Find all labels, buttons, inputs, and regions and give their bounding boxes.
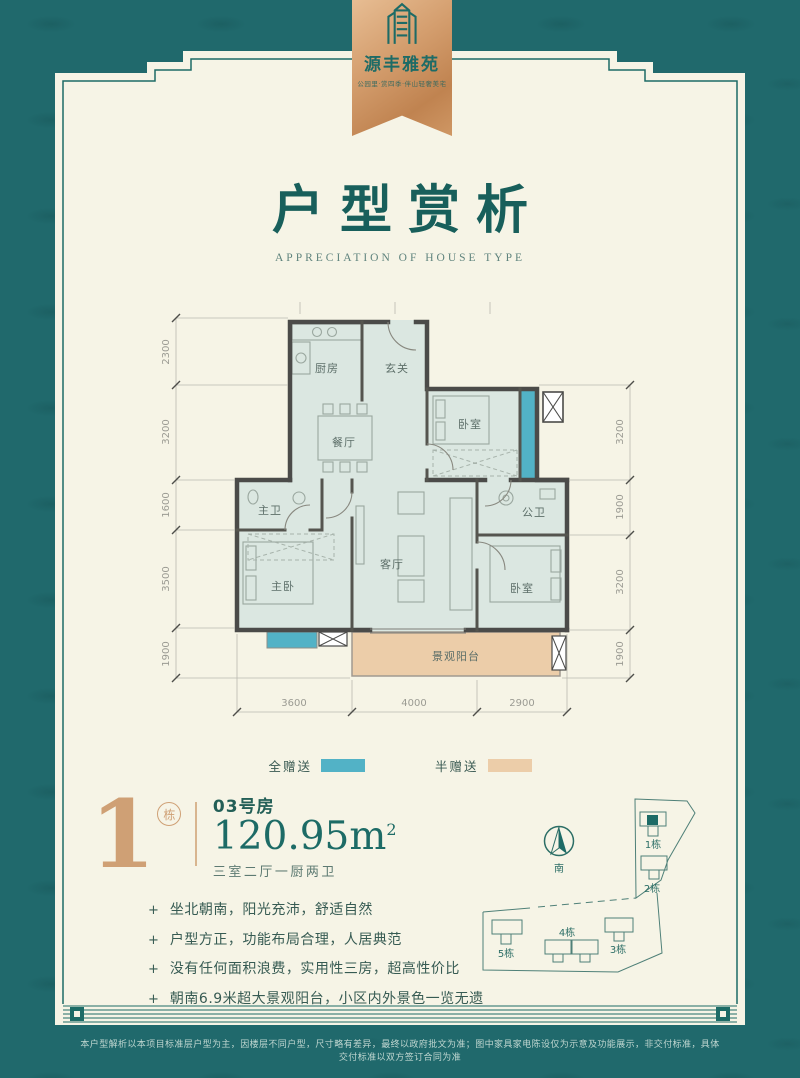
- plus-marker: +: [148, 933, 159, 948]
- plus-marker: +: [148, 992, 159, 1007]
- svg-text:3600: 3600: [281, 698, 306, 709]
- unit-info: 1 栋 03号房 120.95m2 三室二厅一厨两卫: [90, 792, 397, 880]
- poster: 源丰雅苑 公园里·赏四季·伴山轻奢美宅 户型赏析 APPRECIATION OF…: [0, 0, 800, 1078]
- brand-name: 源丰雅苑: [364, 50, 440, 75]
- building-1-marker: [647, 815, 658, 825]
- feature-item: +坐北朝南，阳光充沛，舒适自然: [148, 899, 484, 919]
- building-number: 1: [90, 792, 155, 878]
- room-label-living: 客厅: [380, 557, 404, 571]
- room-label-public-bath: 公卫: [522, 506, 546, 519]
- room-label-bedroom-top: 卧室: [458, 417, 482, 431]
- brand-tagline: 公园里·赏四季·伴山轻奢美宅: [357, 78, 446, 88]
- gift-strip-right: [520, 391, 535, 478]
- feature-text: 坐北朝南，阳光充沛，舒适自然: [170, 899, 373, 919]
- feature-item: +朝南6.9米超大景观阳台，小区内外景色一览无遗: [148, 988, 484, 1008]
- disclaimer-text: 本户型解析以本项目标准层户型为主，因楼层不同户型，尺寸略有差异，最终以政府批文为…: [80, 1037, 720, 1063]
- svg-text:2900: 2900: [509, 698, 534, 709]
- building-badge: 栋: [157, 802, 181, 826]
- building-label-2: 2栋: [644, 882, 660, 895]
- building-label-3: 3栋: [610, 943, 626, 956]
- feature-list: +坐北朝南，阳光充沛，舒适自然 +户型方正，功能布局合理，人居典范 +没有任何面…: [148, 899, 484, 1017]
- site-boundary: [483, 799, 695, 972]
- unit-area: 120.95m2: [213, 817, 397, 858]
- floor-plan: 厨房 玄关 卧室 餐厅 主卫 公卫 主卧 客厅 卧室 景观阳台: [150, 295, 660, 725]
- legend-swatch-full: [321, 759, 365, 772]
- feature-text: 户型方正，功能布局合理，人居典范: [170, 929, 402, 949]
- brand-ribbon: 源丰雅苑 公园里·赏四季·伴山轻奢美宅: [352, 0, 452, 136]
- svg-text:3500: 3500: [161, 566, 172, 591]
- svg-text:1900: 1900: [161, 641, 172, 666]
- plus-marker: +: [148, 962, 159, 977]
- feature-text: 没有任何面积浪费，实用性三房，超高性价比: [170, 958, 460, 978]
- building-logo-icon: [379, 0, 425, 48]
- svg-text:3200: 3200: [161, 419, 172, 444]
- compass-icon: 南: [545, 827, 574, 876]
- page-title: 户型赏析: [0, 168, 800, 243]
- gift-bay-left: [267, 632, 317, 648]
- legend-label-full: 全赠送: [268, 756, 312, 775]
- legend-swatch-half: [488, 759, 532, 772]
- room-label-master-bath: 主卫: [258, 504, 282, 517]
- building-label-4: 4栋: [559, 926, 575, 939]
- unit-layout: 三室二厅一厨两卫: [213, 861, 397, 880]
- svg-text:1600: 1600: [161, 492, 172, 517]
- site-buildings: [492, 812, 667, 962]
- gift-legend: 全赠送 半赠送: [0, 756, 800, 775]
- room-label-master-bedroom: 主卧: [271, 580, 295, 593]
- feature-item: +没有任何面积浪费，实用性三房，超高性价比: [148, 958, 484, 978]
- svg-text:3200: 3200: [615, 569, 626, 594]
- room-label-kitchen: 厨房: [315, 362, 339, 375]
- room-label-foyer: 玄关: [385, 361, 409, 375]
- compass-south-label: 南: [554, 862, 564, 875]
- svg-text:2300: 2300: [161, 339, 172, 364]
- room-label-dining: 餐厅: [332, 435, 356, 449]
- feature-text: 朝南6.9米超大景观阳台，小区内外景色一览无遗: [170, 988, 484, 1008]
- legend-label-half: 半赠送: [435, 756, 479, 775]
- building-label-5: 5栋: [498, 947, 514, 960]
- page-title-block: 户型赏析 APPRECIATION OF HOUSE TYPE: [0, 168, 800, 264]
- unit-text-block: 03号房 120.95m2 三室二厅一厨两卫: [213, 792, 397, 880]
- room-label-bedroom-right: 卧室: [510, 581, 534, 595]
- unit-divider: [195, 802, 197, 866]
- svg-text:1900: 1900: [615, 494, 626, 519]
- building-label-1: 1栋: [645, 838, 661, 851]
- plus-marker: +: [148, 903, 159, 918]
- svg-text:1900: 1900: [615, 641, 626, 666]
- svg-text:4000: 4000: [401, 698, 426, 709]
- room-label-balcony: 景观阳台: [432, 649, 480, 663]
- svg-text:3200: 3200: [615, 419, 626, 444]
- site-building-labels: 1栋 2栋 3栋 4栋 5栋: [498, 838, 661, 960]
- legend-item-full: 全赠送: [268, 756, 365, 775]
- feature-item: +户型方正，功能布局合理，人居典范: [148, 929, 484, 949]
- legend-item-half: 半赠送: [435, 756, 532, 775]
- page-subtitle: APPRECIATION OF HOUSE TYPE: [0, 252, 800, 264]
- site-plan: 南 1栋 2栋 3栋 4栋 5栋: [470, 785, 710, 1017]
